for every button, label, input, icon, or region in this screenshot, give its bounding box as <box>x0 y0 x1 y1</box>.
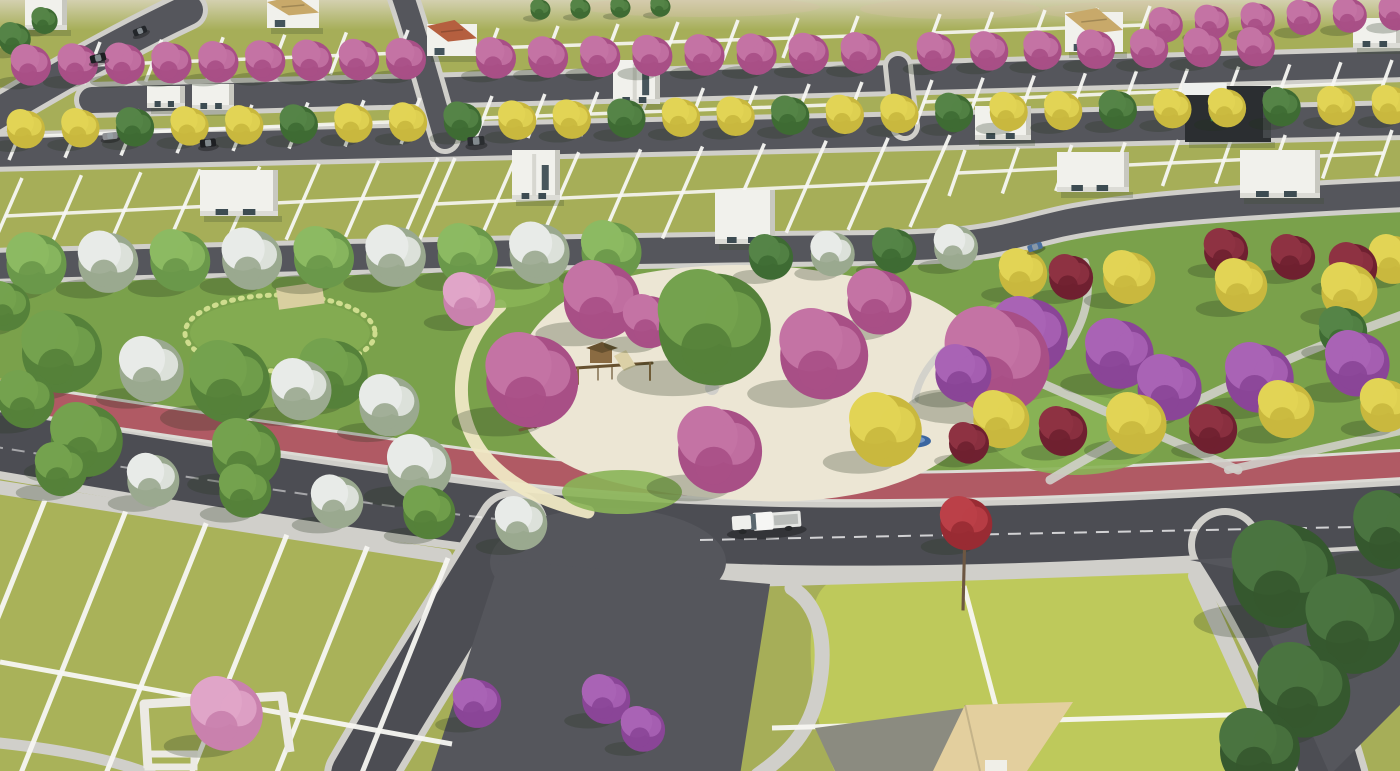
roof-parapet <box>532 154 536 196</box>
tree-canopy <box>66 63 84 81</box>
tree-canopy <box>957 441 975 459</box>
house-front <box>1240 193 1320 198</box>
tree-canopy <box>372 403 399 430</box>
tree-canopy <box>834 113 851 130</box>
truck-bed-inner <box>774 514 799 526</box>
tree-canopy <box>670 116 687 133</box>
house-shadow <box>204 216 282 222</box>
tree-canopy <box>947 371 972 396</box>
house-window <box>155 101 161 107</box>
tree-canopy <box>178 125 195 142</box>
tree-canopy <box>1114 275 1137 298</box>
house <box>427 20 481 62</box>
tree-canopy <box>1379 257 1400 279</box>
truck-hood <box>732 515 752 530</box>
tree-canopy <box>394 57 412 75</box>
house-window <box>1256 191 1269 197</box>
tree-canopy <box>506 521 529 544</box>
house-window <box>435 48 445 55</box>
tree-canopy <box>978 50 995 67</box>
tree-canopy <box>1052 109 1069 126</box>
tree-canopy <box>322 500 345 523</box>
tree-canopy <box>234 257 261 284</box>
house-shadow <box>1357 48 1400 54</box>
tree-canopy <box>797 52 815 70</box>
tree-canopy <box>454 297 477 320</box>
tree-canopy <box>1280 255 1300 275</box>
tree-canopy <box>162 258 189 285</box>
tree-canopy <box>1099 351 1130 382</box>
tree-canopy <box>997 110 1014 127</box>
house-side <box>555 150 560 200</box>
tree-canopy <box>1245 45 1262 62</box>
house-shadow <box>271 28 323 34</box>
house-roof <box>200 170 278 216</box>
tree-canopy <box>1138 47 1155 64</box>
house-window <box>216 209 228 215</box>
tree-canopy <box>758 255 778 275</box>
house-window <box>168 101 174 107</box>
tree-canopy <box>233 124 250 141</box>
house-window <box>1363 41 1371 47</box>
car-glass <box>473 137 480 145</box>
tree-canopy <box>378 254 405 281</box>
house-roof <box>1057 152 1129 192</box>
tree-canopy <box>1325 104 1342 121</box>
tree-canopy <box>207 60 225 78</box>
house-window <box>1379 41 1387 47</box>
tree-canopy <box>1199 427 1221 449</box>
tree-canopy <box>288 123 305 140</box>
house <box>1057 152 1133 198</box>
tree-canopy <box>113 62 131 80</box>
tree-canopy <box>19 261 46 288</box>
subdivision-render <box>0 0 1400 771</box>
tree-canopy <box>205 711 237 743</box>
house <box>267 0 323 34</box>
house-window <box>727 237 737 243</box>
tree-canopy <box>561 118 578 135</box>
house-front <box>975 135 1031 140</box>
tree-canopy <box>779 114 796 131</box>
house-window <box>639 97 647 103</box>
tree-canopy <box>506 119 523 136</box>
tree-canopy <box>681 323 731 373</box>
house-side <box>1315 150 1320 198</box>
tree-canopy <box>132 367 161 396</box>
tree-canopy <box>1216 106 1233 123</box>
tree-canopy <box>985 417 1010 442</box>
tree-canopy <box>1380 103 1397 120</box>
tree-canopy <box>615 7 624 16</box>
tree-canopy <box>451 120 468 137</box>
tree-canopy <box>535 9 544 18</box>
house <box>1240 150 1324 204</box>
tree-canopy <box>1119 421 1146 448</box>
tree-canopy <box>138 478 161 501</box>
tree-canopy <box>505 377 546 418</box>
house-window <box>1006 133 1015 139</box>
house-shadow <box>979 140 1035 146</box>
tree-canopy <box>253 60 271 78</box>
tree-canopy <box>925 50 942 67</box>
house-window <box>275 20 285 27</box>
tree-canopy <box>849 51 867 69</box>
tree-canopy <box>1161 107 1178 124</box>
tree-canopy <box>951 521 974 544</box>
tree-canopy <box>342 122 359 139</box>
house-window <box>1097 185 1109 191</box>
tree-canopy <box>414 510 437 533</box>
house-shadow <box>516 200 564 206</box>
house-side <box>1124 152 1129 192</box>
house-shadow <box>1244 198 1324 204</box>
tree-canopy <box>1031 49 1048 66</box>
car-glass <box>205 139 212 146</box>
house-shadow <box>1061 192 1133 198</box>
tree-canopy <box>1049 429 1071 451</box>
tree-canopy <box>1340 14 1355 29</box>
tree-canopy <box>463 701 485 723</box>
roof-detail <box>985 760 1007 771</box>
tree-canopy <box>1270 407 1295 432</box>
house-shadow <box>431 56 481 62</box>
tree-canopy <box>1338 361 1367 390</box>
tree-canopy <box>695 447 733 485</box>
house-front <box>1057 187 1129 192</box>
tree-canopy <box>46 467 69 490</box>
tree-canopy <box>306 255 333 282</box>
tree-canopy <box>300 59 318 77</box>
tree-canopy <box>206 379 242 415</box>
tree-canopy <box>37 20 49 32</box>
tree-canopy <box>888 112 905 129</box>
tree-canopy <box>588 55 606 73</box>
tree-canopy <box>536 56 554 74</box>
tree-canopy <box>347 58 365 76</box>
house-window <box>215 103 222 109</box>
tree-canopy <box>1009 271 1031 293</box>
tree-canopy <box>655 6 664 15</box>
house-window <box>522 193 530 199</box>
tree-canopy <box>69 126 86 143</box>
house-window <box>200 103 207 109</box>
tree-canopy <box>943 111 960 128</box>
tree-canopy <box>124 126 141 143</box>
tree-canopy <box>484 56 502 74</box>
tree-canopy <box>1085 48 1102 65</box>
tree-canopy <box>693 54 711 72</box>
tree-canopy <box>864 427 896 459</box>
tree-canopy <box>634 319 657 342</box>
window-slats <box>542 165 549 190</box>
tree-canopy <box>615 117 632 134</box>
aerial-render-view <box>0 0 1400 771</box>
house-window <box>1284 191 1297 197</box>
tree-canopy <box>19 63 37 81</box>
tree-canopy <box>592 697 614 719</box>
tree-canopy <box>1371 403 1394 426</box>
house-roof <box>1240 150 1320 198</box>
tree-canopy <box>575 8 584 17</box>
tree-canopy <box>798 351 838 391</box>
tree-canopy <box>230 489 253 512</box>
house-front <box>192 105 234 110</box>
tree-canopy <box>160 61 178 79</box>
tree-canopy <box>881 249 901 269</box>
tree-canopy <box>820 252 840 272</box>
tree-canopy <box>1191 46 1208 63</box>
house <box>200 170 282 222</box>
tree-canopy <box>1107 108 1124 125</box>
tree-canopy <box>397 121 414 138</box>
house <box>512 150 564 206</box>
house-shadow <box>1189 142 1275 148</box>
tree-canopy <box>1058 275 1078 295</box>
tree-canopy <box>860 299 889 328</box>
tree-canopy <box>1294 16 1309 31</box>
tree-canopy <box>724 115 741 132</box>
tree-canopy <box>943 245 963 265</box>
tree-canopy <box>745 53 763 71</box>
tree-canopy <box>1226 283 1249 306</box>
tree-canopy <box>10 397 35 422</box>
tree-canopy <box>90 260 117 287</box>
tree-canopy <box>630 727 650 747</box>
tree-canopy <box>579 297 613 331</box>
tree-canopy <box>15 127 32 144</box>
house-window <box>243 209 255 215</box>
tree-canopy <box>640 54 658 72</box>
house-front <box>200 211 278 216</box>
tree-canopy <box>1253 570 1300 617</box>
house-front <box>1353 43 1400 48</box>
house-window <box>1071 185 1083 191</box>
car-glass <box>107 133 113 139</box>
tree-canopy <box>1270 105 1287 122</box>
house-window <box>538 193 546 199</box>
house-side <box>273 170 278 216</box>
tree-canopy <box>522 251 549 278</box>
tree-canopy <box>284 387 311 414</box>
